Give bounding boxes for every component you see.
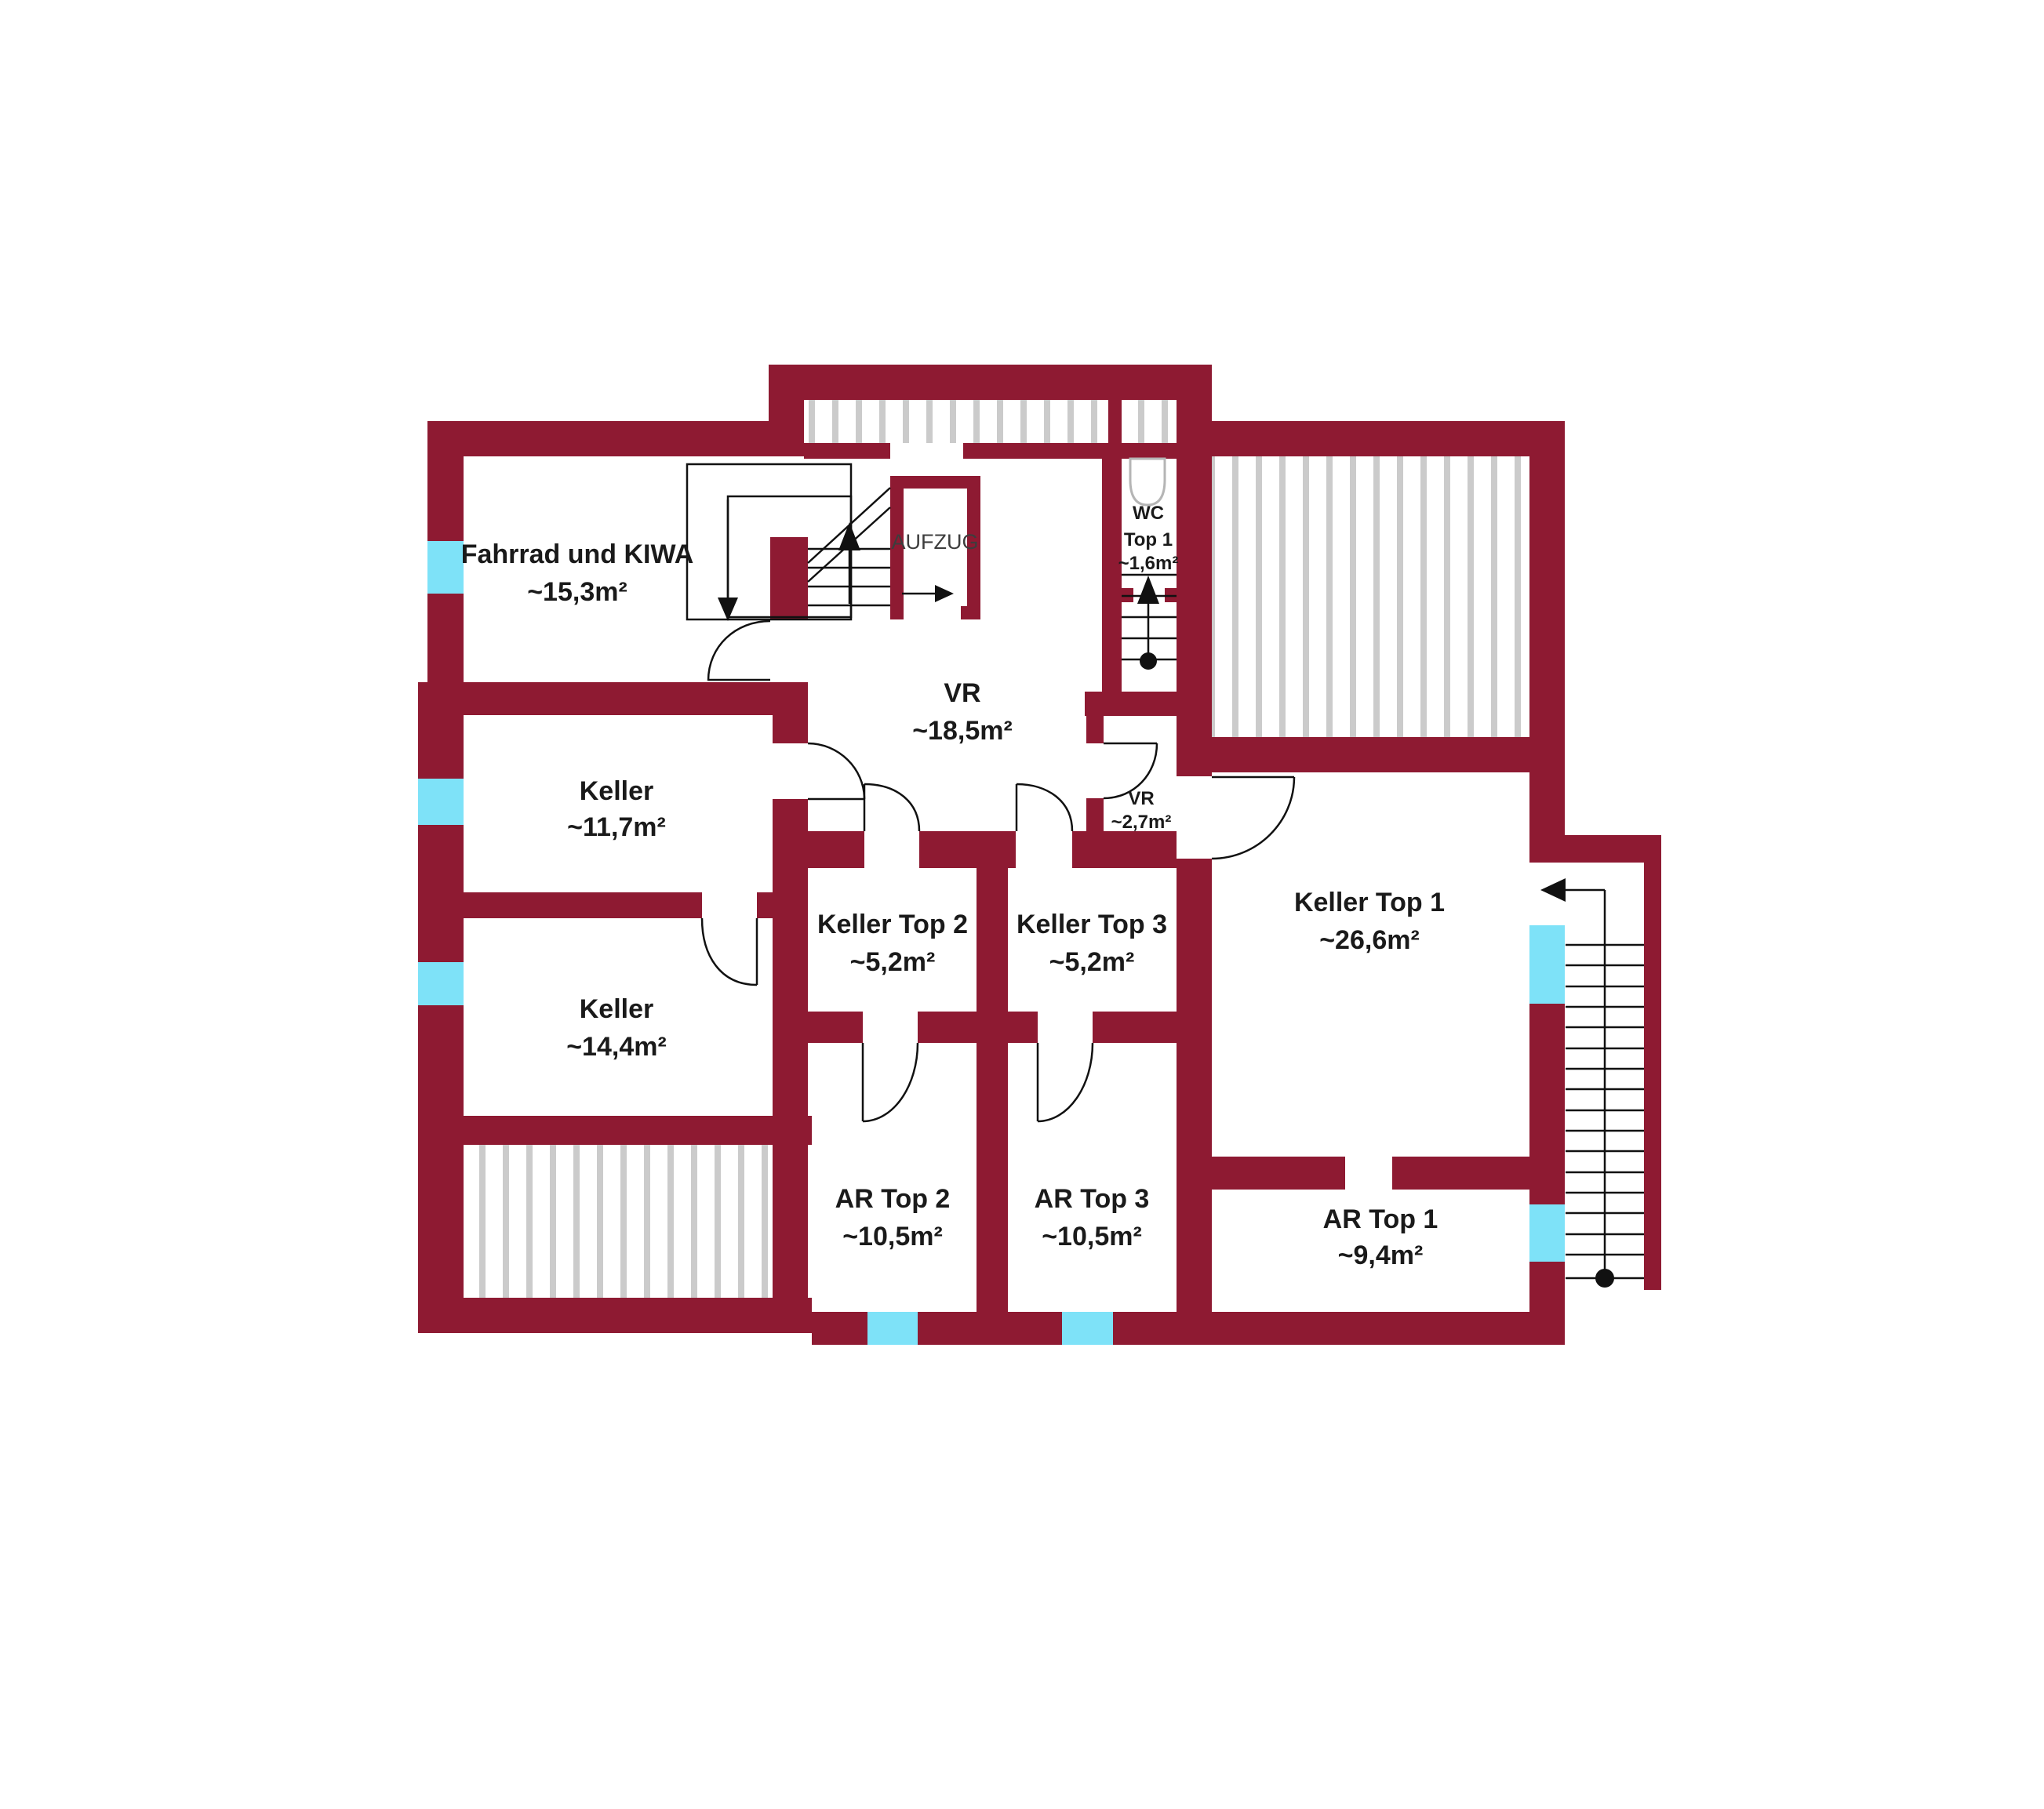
room-area-kellertop3: ~5,2m² bbox=[1049, 947, 1135, 977]
room-label-artop3: AR Top 3 bbox=[1035, 1184, 1150, 1214]
window bbox=[1529, 925, 1565, 1004]
wall bbox=[1392, 1157, 1529, 1190]
room-area-keller117: ~11,7m² bbox=[567, 812, 666, 842]
door-arc bbox=[708, 621, 770, 681]
room-keller-top1 bbox=[1212, 772, 1529, 1157]
wall bbox=[963, 443, 1212, 459]
wall bbox=[1093, 1012, 1177, 1043]
wall bbox=[918, 1012, 977, 1043]
wall bbox=[1177, 737, 1565, 772]
room-area-wc: ~1,6m² bbox=[1118, 553, 1179, 574]
room-area-artop2: ~10,5m² bbox=[842, 1222, 943, 1251]
wall bbox=[804, 443, 890, 459]
room-area-vr27: ~2,7m² bbox=[1111, 812, 1172, 833]
room-label-wc-line2: Top 1 bbox=[1124, 529, 1173, 550]
room-area-kellertop2: ~5,2m² bbox=[850, 947, 936, 977]
wall bbox=[1529, 1262, 1565, 1345]
room-keller-top2 bbox=[808, 868, 977, 1012]
wall bbox=[919, 831, 1016, 868]
wall bbox=[418, 1298, 812, 1333]
room-label-kellertop3: Keller Top 3 bbox=[1017, 910, 1167, 939]
wall bbox=[1108, 400, 1122, 443]
room-area-vr: ~18,5m² bbox=[912, 716, 1013, 746]
wall bbox=[1072, 831, 1177, 868]
wall bbox=[773, 799, 808, 831]
wall bbox=[1212, 1157, 1345, 1190]
grating-top-band bbox=[804, 400, 1108, 443]
window bbox=[1529, 1204, 1565, 1262]
wall bbox=[418, 1005, 464, 1298]
wall bbox=[1177, 859, 1212, 1345]
room-label-wc: WC bbox=[1133, 503, 1164, 524]
floorplan: Fahrrad und KIWA ~15,3m² Keller ~11,7m² … bbox=[0, 0, 2044, 1809]
room-ar-top3 bbox=[1008, 1043, 1177, 1312]
grating-top-band-small bbox=[1122, 400, 1177, 443]
wall bbox=[464, 682, 808, 715]
window bbox=[418, 962, 464, 1005]
wall bbox=[1008, 1012, 1038, 1043]
grating-bottom-left-area bbox=[464, 1145, 773, 1298]
door-arc bbox=[808, 743, 864, 799]
door-arc bbox=[1038, 1043, 1093, 1121]
door-arc bbox=[702, 918, 757, 985]
wall bbox=[427, 421, 769, 456]
room-keller-top3 bbox=[1008, 868, 1177, 1012]
window bbox=[867, 1312, 918, 1345]
room-label-vr27: VR bbox=[1128, 788, 1154, 809]
wall bbox=[773, 831, 864, 868]
door-arc bbox=[1017, 784, 1072, 831]
toilet-icon bbox=[1130, 459, 1165, 505]
wall bbox=[1102, 456, 1122, 692]
wall bbox=[1529, 421, 1565, 863]
arrow-left-icon bbox=[1540, 878, 1566, 902]
stair-outline bbox=[687, 464, 851, 619]
window bbox=[418, 779, 464, 825]
wall bbox=[1529, 1004, 1565, 1204]
room-label-kellertop1: Keller Top 1 bbox=[1294, 888, 1445, 917]
wall-stair-pillar bbox=[770, 537, 808, 619]
window bbox=[1062, 1312, 1113, 1345]
room-label-vr: VR bbox=[944, 678, 980, 708]
wall bbox=[812, 1312, 867, 1345]
room-area-artop3: ~10,5m² bbox=[1042, 1222, 1142, 1251]
room-area-fahrrad: ~15,3m² bbox=[527, 577, 627, 607]
arrow-up-icon bbox=[1137, 576, 1159, 604]
wall-elevator bbox=[961, 606, 980, 619]
wall bbox=[418, 682, 464, 779]
floorplan-page: { "plan": { "type": "basement-floorplan"… bbox=[0, 0, 2044, 1809]
room-label-artop1: AR Top 1 bbox=[1323, 1204, 1438, 1234]
path-start-dot bbox=[1140, 652, 1157, 670]
door-arc bbox=[864, 784, 919, 831]
wall bbox=[464, 892, 702, 918]
wall bbox=[757, 892, 773, 918]
wall bbox=[427, 421, 464, 541]
room-fahrrad bbox=[464, 456, 769, 682]
room-label-kellertop2: Keller Top 2 bbox=[817, 910, 968, 939]
door-arc bbox=[863, 1043, 918, 1121]
wall bbox=[769, 365, 1212, 400]
room-area-kellertop1: ~26,6m² bbox=[1319, 925, 1420, 955]
wall bbox=[427, 594, 464, 682]
wall bbox=[808, 1012, 863, 1043]
room-label-keller144: Keller bbox=[580, 994, 654, 1024]
window bbox=[427, 541, 464, 594]
wall bbox=[769, 400, 804, 456]
room-label-artop2: AR Top 2 bbox=[835, 1184, 951, 1214]
wall bbox=[977, 868, 1008, 1312]
wall bbox=[464, 1116, 812, 1145]
door-arc bbox=[1212, 777, 1294, 859]
wall-elevator bbox=[890, 476, 980, 489]
grating-terrace-area bbox=[1212, 456, 1529, 737]
room-label-fahrrad: Fahrrad und KIWA bbox=[461, 539, 694, 569]
wall bbox=[773, 684, 808, 743]
wall-stair-enclosure bbox=[1644, 835, 1661, 1290]
wall bbox=[773, 868, 808, 1333]
room-label-keller117: Keller bbox=[580, 776, 654, 806]
elevator-label: AUFZUG bbox=[892, 530, 979, 554]
wall bbox=[1212, 421, 1565, 456]
path-start-dot bbox=[1595, 1269, 1614, 1288]
wall bbox=[1177, 365, 1212, 776]
room-area-artop1: ~9,4m² bbox=[1338, 1241, 1424, 1270]
wall bbox=[1113, 1312, 1565, 1345]
wall bbox=[418, 825, 464, 962]
wall bbox=[1086, 798, 1104, 831]
room-ar-top2 bbox=[808, 1043, 977, 1312]
wall bbox=[1086, 716, 1104, 743]
wall bbox=[918, 1312, 1062, 1345]
room-area-keller144: ~14,4m² bbox=[566, 1032, 667, 1062]
arrow-right-icon bbox=[935, 585, 954, 602]
